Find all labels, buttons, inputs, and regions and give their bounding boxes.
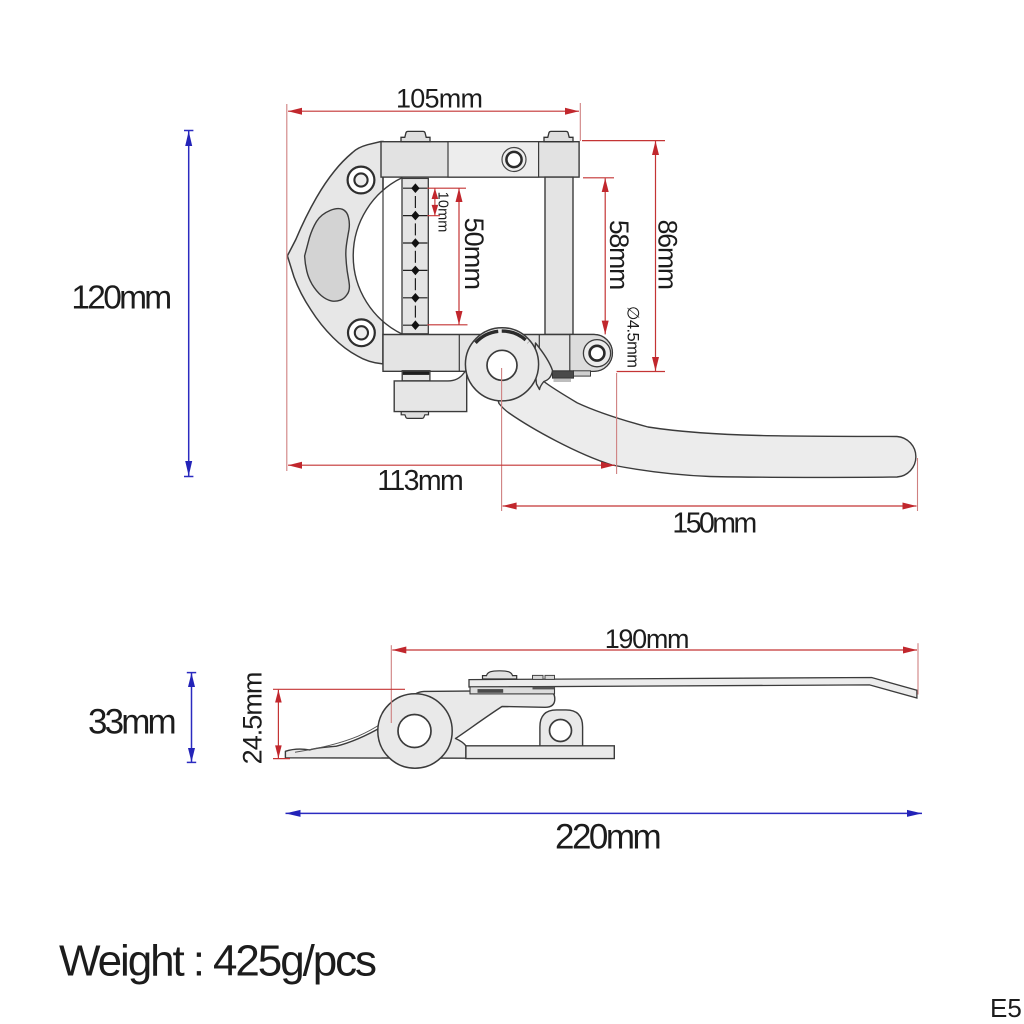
svg-text:∅4.5mm: ∅4.5mm xyxy=(624,306,642,368)
svg-text:33mm: 33mm xyxy=(88,702,177,741)
svg-text:150mm: 150mm xyxy=(672,508,757,540)
svg-text:E5: E5 xyxy=(990,993,1022,1023)
svg-text:113mm: 113mm xyxy=(377,465,464,497)
svg-text:105mm: 105mm xyxy=(396,84,483,114)
svg-text:24.5mm: 24.5mm xyxy=(238,672,268,765)
svg-text:86mm: 86mm xyxy=(653,220,683,290)
svg-text:190mm: 190mm xyxy=(605,624,690,654)
svg-text:10mm: 10mm xyxy=(435,192,451,233)
svg-text:Weight : 425g/pcs: Weight : 425g/pcs xyxy=(59,937,377,986)
svg-text:220mm: 220mm xyxy=(555,818,662,857)
svg-text:58mm: 58mm xyxy=(604,220,634,290)
svg-text:120mm: 120mm xyxy=(71,280,172,317)
svg-text:50mm: 50mm xyxy=(459,217,489,290)
